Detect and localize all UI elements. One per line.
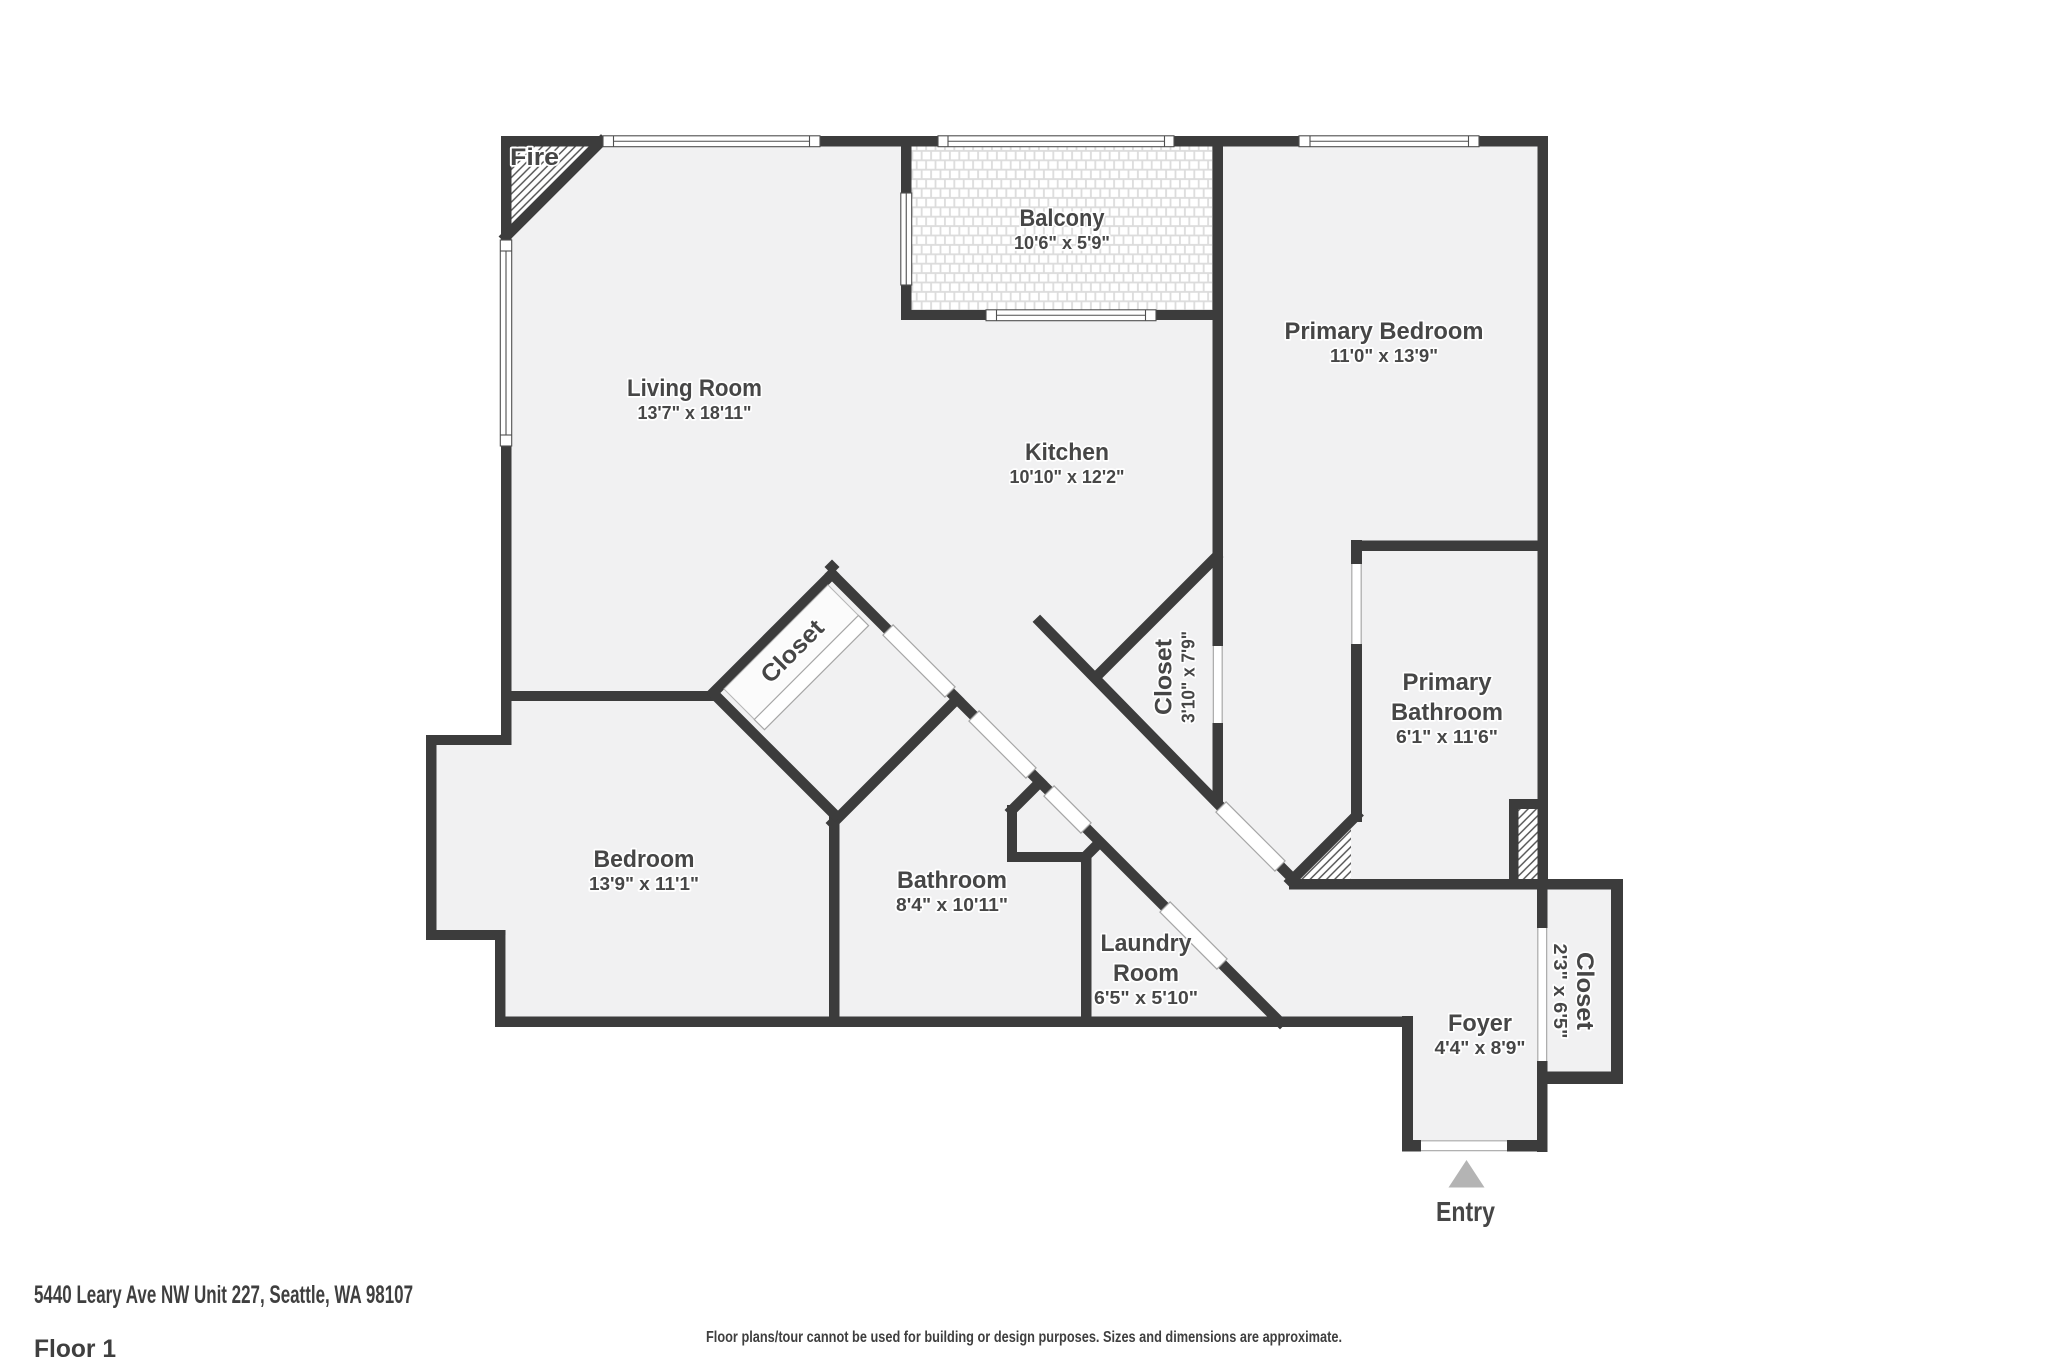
svg-text:Closet: Closet: [1151, 639, 1178, 715]
svg-text:Fire: Fire: [510, 144, 559, 171]
svg-text:13'7" x 18'11": 13'7" x 18'11": [638, 403, 752, 423]
svg-text:6'5" x 5'10": 6'5" x 5'10": [1094, 988, 1198, 1008]
svg-text:Entry: Entry: [1436, 1196, 1495, 1227]
svg-text:Primary: Primary: [1403, 669, 1493, 696]
svg-text:Floor plans/tour cannot be use: Floor plans/tour cannot be used for buil…: [706, 1329, 1342, 1346]
svg-text:Primary Bedroom: Primary Bedroom: [1285, 318, 1484, 345]
svg-text:Balcony: Balcony: [1020, 205, 1106, 232]
svg-text:13'9" x 11'1": 13'9" x 11'1": [589, 874, 699, 894]
svg-text:Living Room: Living Room: [627, 375, 762, 402]
svg-text:Bedroom: Bedroom: [594, 846, 695, 873]
svg-text:10'6" x 5'9": 10'6" x 5'9": [1014, 233, 1110, 253]
svg-text:Floor 1: Floor 1: [34, 1335, 116, 1363]
svg-text:Room: Room: [1113, 960, 1179, 987]
svg-text:4'4" x 8'9": 4'4" x 8'9": [1435, 1038, 1526, 1058]
svg-text:10'10" x 12'2": 10'10" x 12'2": [1010, 467, 1125, 487]
svg-text:6'1" x 11'6": 6'1" x 11'6": [1396, 727, 1498, 747]
svg-text:Bathroom: Bathroom: [897, 867, 1007, 894]
svg-text:Laundry: Laundry: [1101, 930, 1193, 957]
svg-text:11'0" x 13'9": 11'0" x 13'9": [1330, 346, 1438, 366]
svg-text:8'4" x 10'11": 8'4" x 10'11": [896, 895, 1008, 915]
svg-text:5440 Leary Ave NW Unit 227, Se: 5440 Leary Ave NW Unit 227, Seattle, WA …: [34, 1281, 413, 1309]
svg-text:Foyer: Foyer: [1448, 1010, 1512, 1037]
svg-text:Bathroom: Bathroom: [1391, 699, 1503, 726]
svg-text:Kitchen: Kitchen: [1025, 439, 1109, 466]
svg-text:Closet: Closet: [1571, 952, 1598, 1030]
svg-text:3'10" x 7'9": 3'10" x 7'9": [1179, 631, 1199, 723]
svg-text:2'3" x 6'5": 2'3" x 6'5": [1550, 944, 1570, 1039]
